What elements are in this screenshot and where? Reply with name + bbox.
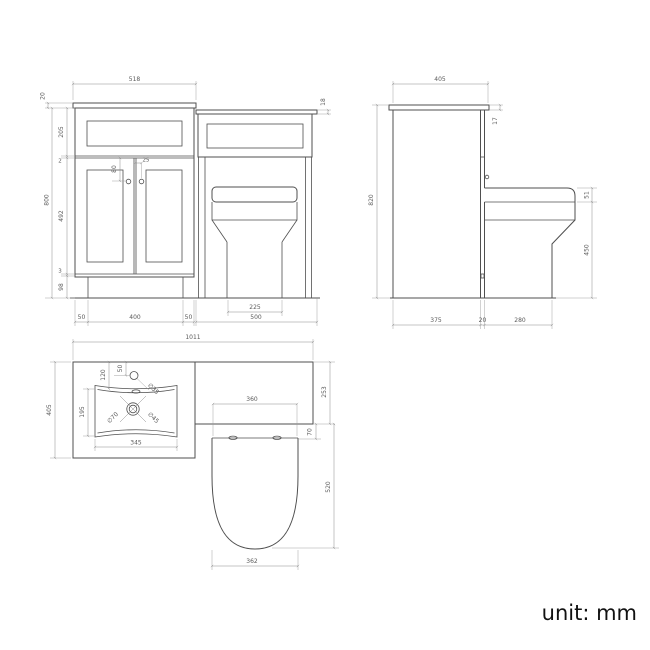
dim-text-20-gap: 20 — [479, 317, 487, 324]
dim-text-500: 500 — [250, 314, 262, 321]
dim-text-405-plan: 405 — [46, 404, 53, 416]
front-toilet-taper-left — [212, 220, 227, 242]
dim-text-225: 225 — [249, 304, 261, 311]
dim-text-405-side: 405 — [434, 76, 446, 83]
front-right-knob — [139, 179, 144, 184]
front-wc-worktop — [196, 110, 317, 114]
dim-plan-tap-offset: 50 — [114, 362, 130, 376]
dim-side-overall-height: 820 — [368, 105, 390, 298]
front-view: 518 20 800 205 2 492 3 98 — [40, 76, 332, 326]
dim-text-253: 253 — [321, 386, 328, 398]
dim-front-left-chain: 205 2 492 3 98 — [58, 108, 75, 298]
plan-waste-symbol — [120, 396, 146, 422]
front-wc-top-panel — [198, 114, 312, 157]
dim-plan-overall-width: 1011 — [73, 334, 313, 360]
side-view: 405 17 820 51 450 375 2 — [368, 76, 597, 329]
dim-text-17: 17 — [492, 117, 499, 125]
dim-front-worktop-thickness: 20 — [40, 92, 76, 108]
dim-plan-seat-top-width: 360 — [213, 396, 297, 436]
dim-text-d70: ∅70 — [106, 411, 120, 425]
dim-text-98: 98 — [58, 283, 65, 291]
dim-front-wc-worktop-thickness: 18 — [317, 98, 331, 114]
dim-text-20: 20 — [40, 92, 47, 100]
dim-plan-tap-diameter: ∅35 — [137, 379, 160, 397]
drawing-page: 518 20 800 205 2 492 3 98 — [0, 0, 650, 650]
dim-text-450: 450 — [584, 244, 591, 256]
front-left-knob — [126, 179, 131, 184]
dim-text-51: 51 — [584, 191, 591, 199]
side-hinge-block — [481, 274, 484, 278]
dim-text-120: 120 — [100, 369, 107, 381]
dim-text-50-left: 50 — [78, 314, 86, 321]
dim-side-pan-height: 450 — [556, 202, 597, 298]
dim-text-345: 345 — [130, 440, 142, 447]
dim-side-depth: 405 — [393, 76, 488, 103]
dim-plan-bowl-width: 345 — [95, 439, 177, 451]
dim-text-195: 195 — [79, 406, 86, 418]
dim-text-70: 70 — [307, 428, 314, 436]
dim-side-bottom-chain: 375 20 280 — [393, 300, 552, 329]
dim-text-50-right: 50 — [185, 314, 193, 321]
dim-text-400: 400 — [129, 314, 141, 321]
plan-wc-top — [195, 362, 313, 424]
side-worktop — [389, 105, 489, 110]
dim-side-seat-thickness: 51 — [577, 188, 597, 202]
dim-text-800: 800 — [44, 194, 51, 206]
dim-text-280: 280 — [514, 317, 526, 324]
dim-text-375: 375 — [430, 317, 442, 324]
technical-drawing: 518 20 800 205 2 492 3 98 — [0, 0, 650, 650]
plan-toilet-seat — [212, 438, 298, 549]
dim-front-handle-offset: 25 — [135, 158, 150, 179]
dim-text-520: 520 — [325, 481, 332, 493]
dim-text-d45: ∅45 — [146, 411, 160, 425]
dim-text-2: 2 — [58, 159, 62, 165]
front-right-door-panel — [146, 170, 182, 262]
front-toilet-taper-right — [282, 220, 297, 242]
dim-text-18: 18 — [320, 98, 327, 106]
dim-plan-bowl-depth: 195 — [79, 389, 95, 436]
dim-text-25: 25 — [143, 158, 150, 164]
front-toilet-seat — [212, 187, 297, 202]
front-toilet-rim — [212, 202, 297, 220]
dim-text-50-tap: 50 — [117, 365, 124, 373]
plan-view: 1011 405 120 50 ∅35 195 345 — [46, 334, 339, 570]
dim-text-1011: 1011 — [185, 334, 200, 341]
unit-label: unit: mm — [542, 601, 637, 625]
plan-basin-rim-bottom — [98, 430, 175, 433]
dim-plan-wc-depth: 253 — [313, 362, 335, 424]
dim-front-worktop-width: 518 — [73, 76, 196, 100]
dim-plan-seat-setback: 70 — [298, 424, 321, 439]
dim-plan-vanity-depth: 405 — [46, 362, 71, 458]
side-knob — [485, 175, 489, 179]
front-drawer-panel — [87, 121, 182, 146]
dim-text-492: 492 — [58, 210, 65, 222]
dim-plan-seat-length: 520 — [272, 424, 339, 548]
dim-text-205: 205 — [58, 126, 65, 138]
front-vanity-carcass — [75, 108, 194, 277]
dim-text-362: 362 — [246, 558, 258, 565]
dim-front-handle-drop: 80 — [111, 158, 126, 181]
front-left-door-panel — [87, 170, 123, 262]
dim-text-3: 3 — [58, 269, 62, 275]
front-vanity-worktop — [73, 103, 196, 108]
dim-plan-tap-setback: 120 — [100, 362, 109, 389]
side-toilet-profile — [485, 188, 576, 298]
front-wc-panel-inset — [207, 124, 303, 148]
dim-text-360: 360 — [246, 396, 258, 403]
dim-text-80: 80 — [111, 165, 118, 173]
dim-plan-seat-width: 362 — [212, 550, 298, 570]
dim-side-worktop-thickness: 17 — [489, 105, 503, 125]
dim-text-518: 518 — [129, 76, 141, 83]
dim-text-820: 820 — [368, 194, 375, 206]
plan-tap-hole — [130, 372, 138, 380]
